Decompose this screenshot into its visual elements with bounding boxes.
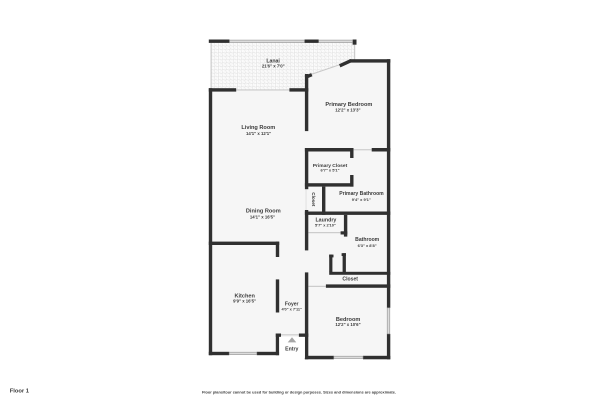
svg-text:6'3" x 8'8": 6'3" x 8'8" xyxy=(358,243,377,248)
svg-text:9'9" x 16'5": 9'9" x 16'5" xyxy=(233,298,256,303)
svg-text:Floor 1: Floor 1 xyxy=(10,388,30,394)
svg-text:14'1" x 12'1": 14'1" x 12'1" xyxy=(246,131,271,136)
svg-text:12'2" x 13'3": 12'2" x 13'3" xyxy=(335,107,360,112)
svg-text:4'0" x 7'11": 4'0" x 7'11" xyxy=(281,307,302,312)
svg-text:Entry: Entry xyxy=(285,347,298,353)
svg-text:Closet: Closet xyxy=(311,192,316,207)
svg-text:Floor plans/tour cannot be use: Floor plans/tour cannot be used for buil… xyxy=(202,389,396,394)
svg-text:9'4" x 9'1": 9'4" x 9'1" xyxy=(352,197,371,202)
svg-text:6'7" x 5'1": 6'7" x 5'1" xyxy=(320,167,339,172)
svg-text:21'6" x 7'0": 21'6" x 7'0" xyxy=(262,63,285,68)
svg-text:Closet: Closet xyxy=(342,277,358,283)
svg-text:5'7" x 2'10": 5'7" x 2'10" xyxy=(315,223,336,228)
svg-text:Dining Room: Dining Room xyxy=(246,208,281,214)
svg-text:12'2" x 10'6": 12'2" x 10'6" xyxy=(335,322,360,327)
svg-text:14'1" x 16'5": 14'1" x 16'5" xyxy=(250,215,275,220)
svg-text:Bathroom: Bathroom xyxy=(355,237,380,243)
